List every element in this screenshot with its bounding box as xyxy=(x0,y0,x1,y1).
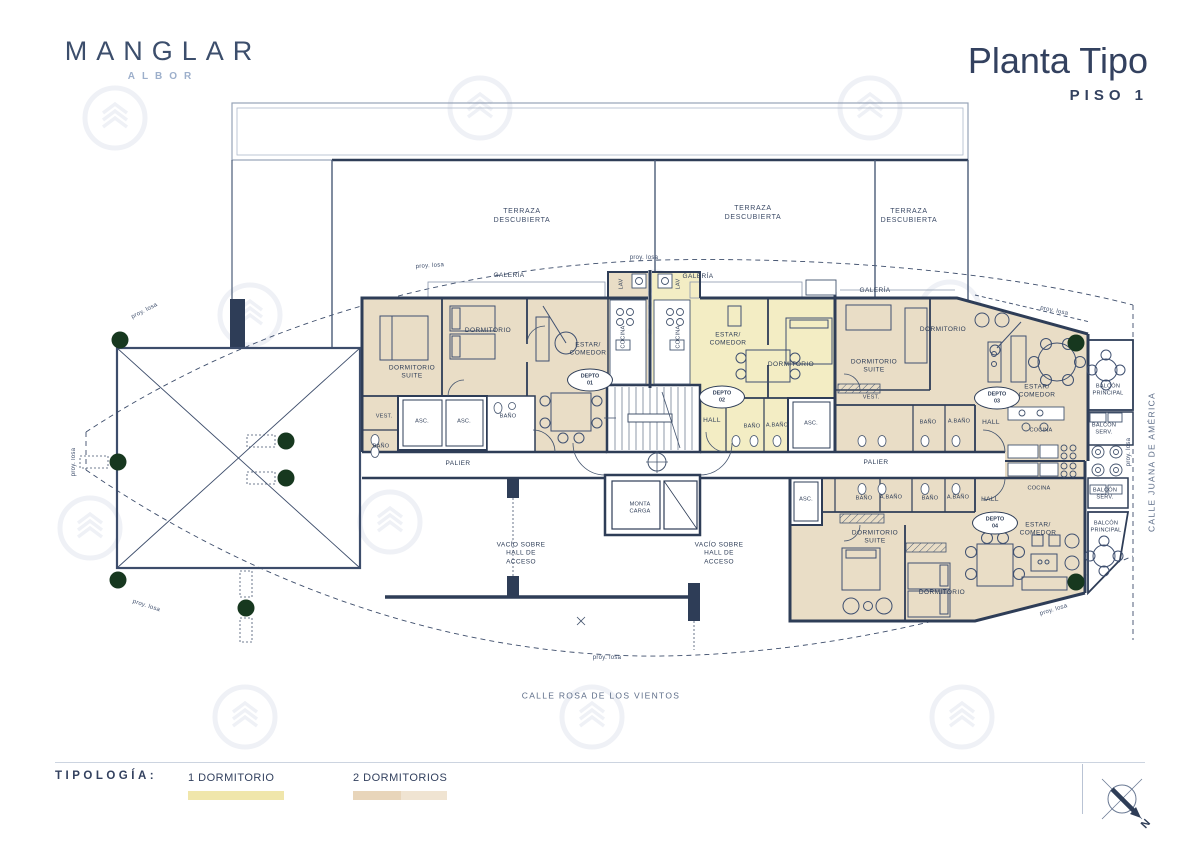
label-asc-3: ASC. xyxy=(804,420,818,427)
label-proy-losa-2: proy. losa xyxy=(71,448,79,477)
label-galeria-3: GALERÍA xyxy=(860,287,891,295)
legend-divider xyxy=(55,762,1145,763)
label-proy-losa-4: proy. losa xyxy=(630,255,659,263)
label-cocina-d01: COCINA xyxy=(620,326,627,349)
label-vest-d01: VEST. xyxy=(376,413,393,420)
label-lav-1: LAV xyxy=(618,279,625,290)
legend-swatch-2-dormitorios-dark xyxy=(353,791,401,800)
label-monta-carga: MONTA CARGA xyxy=(630,502,651,517)
page-title: Planta Tipo xyxy=(968,40,1148,82)
label-hall-d02: HALL xyxy=(703,417,721,425)
label-balcon-principal-d04: BALCÓN PRINCIPAL xyxy=(1091,521,1122,536)
label-bano-d01-2: BAÑO xyxy=(373,443,390,450)
label-galeria-2: GALERÍA xyxy=(683,273,714,281)
label-proy-losa-8: proy. losa xyxy=(593,655,622,663)
label-dormitorio-suite-d01: DORMITORIO SUITE xyxy=(389,365,435,382)
void-terrace xyxy=(117,348,360,568)
label-bano-d01: BAÑO xyxy=(500,413,517,420)
unit-badge-depto-01: DEPTO 01 xyxy=(567,369,613,392)
label-terraza-3: TERRAZA DESCUBIERTA xyxy=(881,207,938,225)
legend-title: TIPOLOGÍA: xyxy=(55,770,157,782)
label-cocina-d04: COCINA xyxy=(1028,485,1051,492)
label-dormitorio-suite-d03: DORMITORIO SUITE xyxy=(851,359,897,376)
compass-icon xyxy=(1102,779,1142,819)
label-cocina-d02: COCINA xyxy=(675,326,682,349)
legend-label-2-dormitorios: 2 DORMITORIOS xyxy=(353,772,447,784)
label-asc-1: ASC. xyxy=(415,418,429,425)
label-abano-d02: A.BAÑO xyxy=(766,422,788,429)
label-palier-1: PALIER xyxy=(445,460,470,468)
legend-swatch-2-dormitorios-light xyxy=(401,791,447,800)
legend-vertical-divider xyxy=(1082,764,1083,814)
label-terraza-2: TERRAZA DESCUBIERTA xyxy=(725,204,782,222)
label-asc-2: ASC. xyxy=(457,418,471,425)
label-bano-d04: BAÑO xyxy=(856,495,873,502)
unit-badge-depto-02: DEPTO 02 xyxy=(699,386,745,409)
brand-logo: MANGLAR ALBOR xyxy=(58,36,268,82)
label-bano-d03: BAÑO xyxy=(920,419,937,426)
columns-markers xyxy=(80,435,700,650)
floor-plan-drawing xyxy=(0,0,1200,845)
label-estar-comedor-d01: ESTAR/ COMEDOR xyxy=(570,342,607,359)
label-balcon-serv-d04: BALCÓN SERV. xyxy=(1093,488,1117,503)
legend-item-2-dormitorios: 2 DORMITORIOS xyxy=(353,768,447,800)
label-balcon-principal-d03: BALCÓN PRINCIPAL xyxy=(1093,384,1124,399)
label-dormitorio-d04: DORMITORIO xyxy=(919,589,965,597)
label-dormitorio-d03: DORMITORIO xyxy=(920,326,966,334)
label-vest-d03: VEST. xyxy=(863,394,880,401)
label-abano-d04: A.BAÑO xyxy=(880,494,902,501)
legend-label-1-dormitorio: 1 DORMITORIO xyxy=(188,772,274,784)
brand-name: MANGLAR xyxy=(58,36,268,67)
label-bano-d02: BAÑO xyxy=(744,423,761,430)
label-palier-2: PALIER xyxy=(863,459,888,467)
label-estar-comedor-d02: ESTAR/ COMEDOR xyxy=(710,332,747,349)
label-abano-d04-2: A.BAÑO xyxy=(947,494,969,501)
label-galeria-1: GALERÍA xyxy=(494,272,525,280)
floor-plan-page: MANGLAR ALBOR Planta Tipo PISO 1 TERRAZA… xyxy=(0,0,1200,845)
title-block: Planta Tipo PISO 1 xyxy=(968,40,1148,104)
label-estar-comedor-d04: ESTAR/ COMEDOR xyxy=(1020,522,1057,539)
label-hall-d03: HALL xyxy=(982,419,1000,427)
label-lav-2: LAV xyxy=(675,279,682,290)
label-dormitorio-d02: DORMITORIO xyxy=(768,361,814,369)
street-label-bottom: CALLE ROSA DE LOS VIENTOS xyxy=(522,690,680,701)
label-dormitorio-suite-d04: DORMITORIO SUITE xyxy=(852,530,898,547)
label-dormitorio-d01: DORMITORIO xyxy=(465,327,511,335)
street-label-right: CALLE JUANA DE AMÉRICA xyxy=(1146,392,1157,532)
unit-badge-depto-04: DEPTO 04 xyxy=(972,512,1018,535)
label-proy-losa-6: proy. losa xyxy=(1126,438,1134,467)
unit-badge-depto-03: DEPTO 03 xyxy=(974,387,1020,410)
label-balcon-serv-d03: BALCÓN SERV. xyxy=(1092,423,1116,438)
brand-subname: ALBOR xyxy=(58,71,268,82)
label-asc-4: ASC. xyxy=(799,496,813,503)
legend-swatch-1-dormitorio xyxy=(188,791,284,800)
label-hall-d04: HALL xyxy=(981,496,999,504)
label-vacio-1: VACÍO SOBRE HALL DE ACCESO xyxy=(497,541,546,566)
label-cocina-d03: COCINA xyxy=(1030,427,1053,434)
page-subtitle: PISO 1 xyxy=(968,87,1148,104)
legend-item-1-dormitorio: 1 DORMITORIO xyxy=(188,768,284,800)
label-abano-d03: A.BAÑO xyxy=(948,418,970,425)
label-bano-d04-2: BAÑO xyxy=(922,495,939,502)
label-terraza-1: TERRAZA DESCUBIERTA xyxy=(494,207,551,225)
label-vacio-2: VACÍO SOBRE HALL DE ACCESO xyxy=(695,541,744,566)
label-estar-comedor-d03: ESTAR/ COMEDOR xyxy=(1019,384,1056,401)
